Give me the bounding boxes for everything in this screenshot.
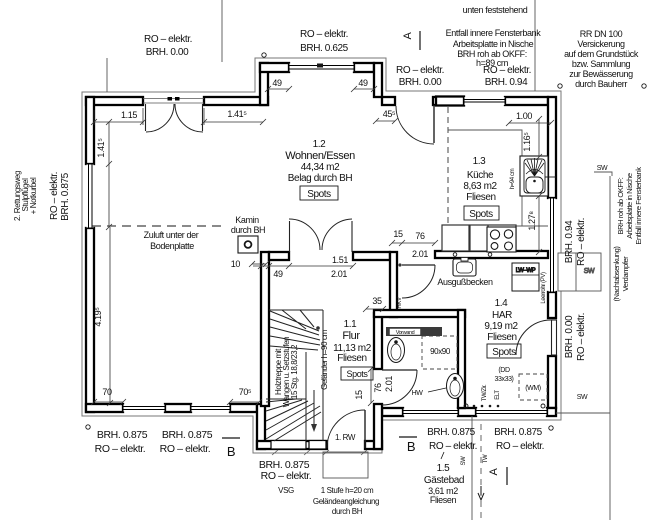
- svg-text:Wohnen/Essen: Wohnen/Essen: [285, 150, 355, 162]
- svg-text:1.15: 1.15: [121, 110, 137, 120]
- svg-text:HAR: HAR: [492, 310, 512, 321]
- svg-text:SW: SW: [584, 268, 595, 275]
- svg-text:RO – elektr.: RO – elektr.: [576, 313, 587, 361]
- svg-text:RO – elektr.: RO – elektr.: [144, 34, 192, 45]
- svg-text:BRH. 0.00: BRH. 0.00: [564, 315, 575, 358]
- svg-text:TW: TW: [483, 454, 489, 463]
- svg-text:+ Notkurbel: + Notkurbel: [29, 177, 38, 214]
- svg-text:BRH. 0.875: BRH. 0.875: [427, 427, 476, 438]
- svg-text:Versickerung: Versickerung: [577, 39, 625, 49]
- svg-text:Entfall innere Fensterbank: Entfall innere Fensterbank: [446, 28, 542, 38]
- svg-text:15 Stg. 18,8/23,2: 15 Stg. 18,8/23,2: [290, 344, 299, 399]
- svg-text:h=94 cm: h=94 cm: [510, 168, 516, 189]
- svg-text:Vorwand: Vorwand: [396, 330, 415, 336]
- svg-text:Fliesen: Fliesen: [430, 495, 457, 505]
- svg-text:Flur: Flur: [342, 330, 360, 342]
- svg-text:A: A: [402, 31, 414, 39]
- svg-text:BRH. 0.875: BRH. 0.875: [162, 429, 213, 441]
- svg-text:Leerrohr (PV): Leerrohr (PV): [541, 272, 547, 304]
- svg-text:BRH. 0.00: BRH. 0.00: [146, 47, 189, 58]
- svg-text:A: A: [488, 467, 500, 475]
- svg-text:1.4: 1.4: [495, 298, 509, 309]
- svg-text:15: 15: [354, 390, 364, 400]
- svg-text:Gästebad: Gästebad: [424, 475, 464, 486]
- svg-text:RO – elektr.: RO – elektr.: [160, 443, 211, 455]
- svg-text:durch Bauherr: durch Bauherr: [575, 79, 627, 89]
- svg-text:Spots: Spots: [492, 347, 516, 358]
- svg-text:1.51: 1.51: [332, 255, 348, 265]
- svg-text:SW: SW: [461, 456, 467, 466]
- svg-text:1.41⁵: 1.41⁵: [96, 138, 106, 158]
- svg-text:1.41⁵: 1.41⁵: [227, 109, 247, 119]
- svg-text:BRH. 0.875: BRH. 0.875: [60, 172, 71, 221]
- svg-text:BRH roh ab OKFF:: BRH roh ab OKFF:: [616, 177, 625, 234]
- svg-text:10: 10: [231, 259, 241, 269]
- svg-text:RR DN 100: RR DN 100: [580, 29, 623, 39]
- svg-text:SW: SW: [597, 165, 608, 172]
- svg-text:35: 35: [372, 296, 382, 306]
- svg-text:70⁵: 70⁵: [239, 387, 252, 397]
- svg-text:Spots: Spots: [307, 189, 331, 200]
- svg-text:RO – elektr.: RO – elektr.: [95, 443, 146, 455]
- svg-text:45⁵: 45⁵: [383, 109, 396, 119]
- svg-text:1.00: 1.00: [516, 111, 532, 121]
- svg-text:8,63 m2: 8,63 m2: [463, 181, 497, 192]
- svg-text:2.01: 2.01: [331, 269, 347, 279]
- svg-text:RO – elektr.: RO – elektr.: [576, 218, 587, 266]
- svg-text:Spots: Spots: [346, 369, 368, 379]
- svg-text:durch BH: durch BH: [231, 225, 265, 235]
- svg-text:BRH. 0.94: BRH. 0.94: [485, 77, 528, 88]
- svg-text:2.01: 2.01: [412, 249, 428, 259]
- svg-text:HW: HW: [412, 390, 424, 397]
- svg-text:49: 49: [273, 269, 283, 279]
- svg-text:49: 49: [358, 78, 368, 88]
- svg-text:1.1: 1.1: [344, 319, 358, 330]
- svg-text:49: 49: [272, 78, 282, 88]
- svg-text:bzw. Sammlung: bzw. Sammlung: [572, 59, 631, 69]
- svg-text:Küche: Küche: [467, 170, 494, 181]
- svg-text:SW: SW: [577, 394, 588, 401]
- svg-text:1. RW: 1. RW: [335, 433, 356, 442]
- svg-text:4.19⁵: 4.19⁵: [93, 307, 103, 327]
- svg-text:Arbeitsplatte in Nische: Arbeitsplatte in Nische: [625, 173, 634, 239]
- svg-text:9,19 m2: 9,19 m2: [484, 321, 518, 332]
- svg-text:durch BH: durch BH: [332, 507, 363, 516]
- svg-text:RO – elektr.: RO – elektr.: [261, 470, 312, 482]
- svg-text:BRH. 0.94: BRH. 0.94: [564, 220, 575, 263]
- svg-text:Entfall innere Fensterbank: Entfall innere Fensterbank: [634, 167, 643, 245]
- svg-text:BRH. 0.875: BRH. 0.875: [494, 427, 543, 438]
- svg-text:Spots: Spots: [469, 209, 493, 220]
- svg-text:Arbeitsplatte in Nische: Arbeitsplatte in Nische: [453, 39, 534, 49]
- svg-text:Fliesen: Fliesen: [466, 192, 495, 203]
- svg-text:h=89 cm: h=89 cm: [476, 58, 508, 68]
- svg-text:Fliesen: Fliesen: [337, 353, 366, 364]
- svg-text:70: 70: [102, 387, 112, 397]
- svg-text:(DD: (DD: [498, 367, 510, 374]
- svg-text:BRH. 0.625: BRH. 0.625: [300, 43, 349, 54]
- svg-text:15: 15: [393, 229, 403, 239]
- svg-text:1 Stufe h=20 cm: 1 Stufe h=20 cm: [321, 486, 374, 495]
- svg-text:LW–WP: LW–WP: [516, 268, 536, 274]
- svg-text:90x90: 90x90: [430, 347, 451, 356]
- svg-text:Belag durch BH: Belag durch BH: [288, 173, 353, 184]
- svg-text:Fliesen: Fliesen: [487, 332, 516, 343]
- svg-text:1.3: 1.3: [473, 156, 487, 167]
- svg-text:Ausgußbecken: Ausgußbecken: [437, 277, 493, 287]
- svg-text:zur Bewässerung: zur Bewässerung: [569, 69, 633, 79]
- svg-text:RO – elektr.: RO – elektr.: [429, 441, 477, 452]
- svg-text:B: B: [227, 444, 235, 459]
- svg-text:1.2: 1.2: [313, 139, 327, 150]
- svg-text:1.16⁵: 1.16⁵: [522, 132, 532, 152]
- svg-text:ELT: ELT: [495, 390, 501, 400]
- svg-text:Zuluft unter der: Zuluft unter der: [144, 230, 199, 240]
- svg-text:Geländeangleichung: Geländeangleichung: [313, 497, 379, 506]
- svg-text:(Nachtabsenkung): (Nachtabsenkung): [612, 246, 621, 302]
- svg-text:RO – elektr.: RO – elektr.: [300, 29, 348, 40]
- svg-text:Geländer h=90 cm: Geländer h=90 cm: [320, 329, 329, 389]
- svg-text:Verdampfer: Verdampfer: [621, 256, 630, 292]
- svg-text:44,34 m2: 44,34 m2: [301, 162, 340, 173]
- svg-text:RO – elektr.: RO – elektr.: [496, 441, 544, 452]
- svg-text:Kamin: Kamin: [235, 215, 259, 225]
- svg-text:1.27⁸: 1.27⁸: [527, 211, 537, 231]
- svg-text:1.5: 1.5: [437, 463, 451, 474]
- svg-text:VSG: VSG: [278, 486, 294, 495]
- svg-text:Bodenplatte: Bodenplatte: [150, 241, 194, 251]
- svg-text:2.01: 2.01: [384, 376, 394, 392]
- svg-text:BRH. 0.00: BRH. 0.00: [399, 77, 442, 88]
- svg-text:HKV: HKV: [397, 297, 403, 309]
- svg-text:B: B: [407, 439, 415, 454]
- svg-text:33x33): 33x33): [494, 376, 513, 383]
- svg-text:RO – elektr.: RO – elektr.: [396, 65, 444, 76]
- svg-text:auf dem Grundstück: auf dem Grundstück: [564, 49, 639, 59]
- svg-text:(WM): (WM): [525, 385, 541, 392]
- svg-text:76: 76: [415, 231, 425, 241]
- svg-text:unten feststehend: unten feststehend: [463, 5, 528, 15]
- svg-text:BRH. 0.875: BRH. 0.875: [97, 429, 148, 441]
- svg-text:TW/Zir.: TW/Zir.: [482, 384, 488, 401]
- svg-text:76: 76: [373, 383, 383, 393]
- svg-text:RO – elektr.: RO – elektr.: [49, 172, 60, 220]
